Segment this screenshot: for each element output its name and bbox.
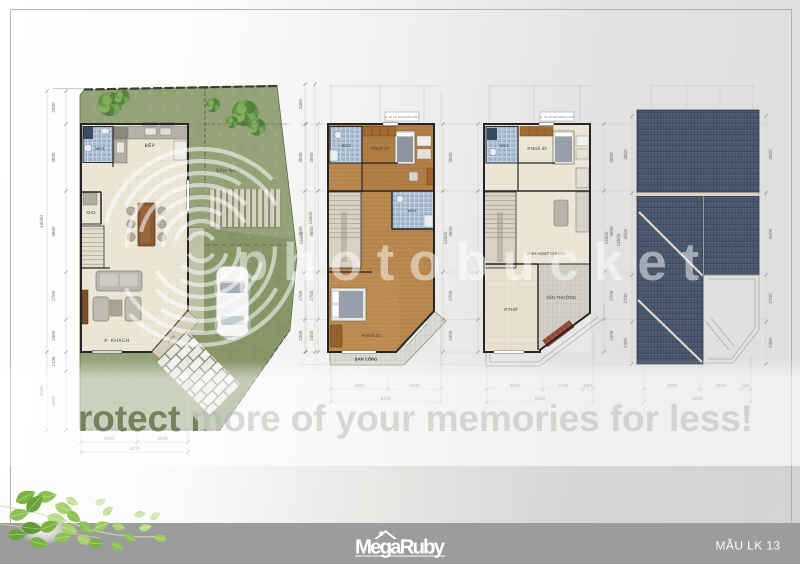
svg-text:MegaRuby: MegaRuby: [355, 536, 446, 559]
svg-text:MẪU LK 13: MẪU LK 13: [716, 539, 781, 553]
